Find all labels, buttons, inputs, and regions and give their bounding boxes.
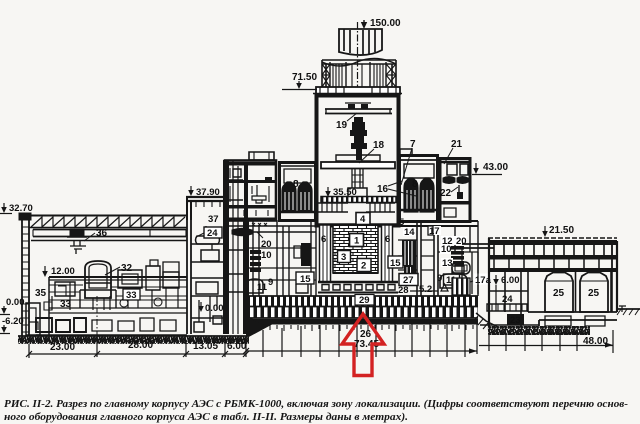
svg-text:1: 1 (354, 236, 360, 247)
svg-text:37: 37 (208, 214, 219, 225)
svg-text:25: 25 (553, 288, 565, 299)
svg-text:33: 33 (126, 290, 137, 301)
svg-text:15: 15 (390, 258, 401, 269)
svg-text:ного оборудования главного кор: ного оборудования главного корпуса АЭС в… (4, 412, 408, 423)
svg-text:РИС. II-2. Разрез по главному: РИС. II-2. Разрез по главному корпусу АЭ… (4, 399, 628, 410)
svg-text:36: 36 (96, 228, 108, 239)
svg-text:35: 35 (35, 288, 47, 299)
svg-text:6: 6 (385, 234, 390, 245)
svg-text:24: 24 (502, 294, 513, 305)
svg-text:29: 29 (359, 295, 370, 306)
svg-text:13: 13 (442, 258, 453, 269)
svg-text:32.70: 32.70 (9, 203, 33, 214)
svg-text:24: 24 (207, 228, 218, 239)
svg-text:33: 33 (60, 299, 72, 310)
svg-text:25: 25 (588, 288, 600, 299)
svg-text:12.00: 12.00 (51, 266, 75, 277)
svg-text:27: 27 (403, 275, 414, 286)
svg-text:10: 10 (441, 244, 452, 255)
svg-text:21.50: 21.50 (549, 225, 574, 236)
svg-text:48.00: 48.00 (583, 336, 608, 347)
svg-text:13.05: 13.05 (193, 341, 218, 352)
svg-text:6.00: 6.00 (501, 275, 520, 286)
svg-text:20: 20 (261, 239, 272, 250)
svg-text:43.00: 43.00 (483, 162, 508, 173)
svg-text:14: 14 (404, 227, 415, 238)
svg-text:0.00: 0.00 (6, 297, 25, 308)
svg-text:22: 22 (440, 188, 452, 199)
svg-text:6.00: 6.00 (227, 341, 247, 352)
svg-text:9: 9 (268, 277, 273, 288)
svg-text:10: 10 (261, 250, 272, 261)
svg-text:5.2: 5.2 (419, 284, 432, 295)
svg-text:-6.20: -6.20 (2, 316, 24, 327)
svg-text:19: 19 (336, 120, 348, 131)
svg-text:35.50: 35.50 (333, 187, 357, 198)
svg-text:18: 18 (373, 140, 385, 151)
svg-text:20: 20 (456, 236, 467, 247)
svg-text:6: 6 (321, 234, 326, 245)
svg-text:15: 15 (300, 274, 311, 285)
svg-text:23.00: 23.00 (50, 342, 75, 353)
svg-text:32: 32 (121, 263, 133, 274)
svg-text:16: 16 (377, 184, 389, 195)
svg-text:4: 4 (360, 214, 366, 225)
svg-text:0.00: 0.00 (205, 303, 224, 314)
svg-text:37.90: 37.90 (196, 187, 220, 198)
svg-text:28.00: 28.00 (128, 340, 153, 351)
svg-text:2: 2 (361, 261, 366, 272)
svg-text:3: 3 (341, 252, 346, 263)
svg-text:11: 11 (257, 282, 268, 293)
svg-text:150.00: 150.00 (370, 18, 401, 29)
svg-text:9: 9 (437, 273, 442, 284)
svg-text:71.50: 71.50 (292, 72, 317, 83)
svg-text:8: 8 (293, 179, 299, 190)
svg-text:7: 7 (410, 139, 416, 150)
svg-text:8: 8 (412, 179, 418, 190)
svg-text:28: 28 (398, 285, 409, 296)
